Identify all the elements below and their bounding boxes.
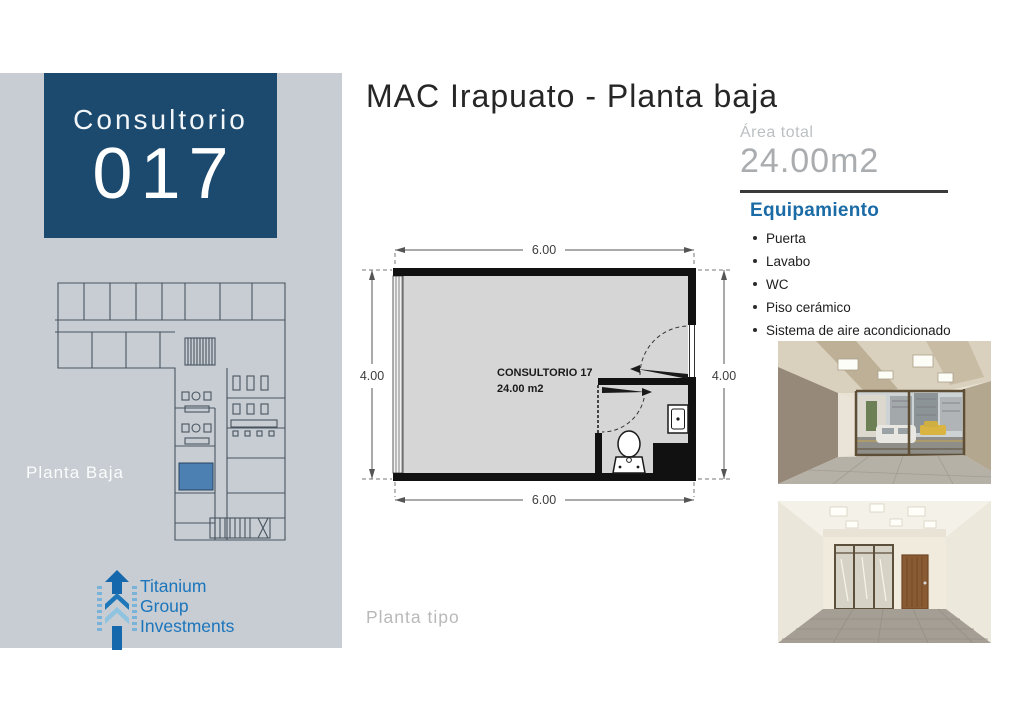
interior-render-empty-room: [778, 501, 991, 643]
total-area-block: Área total 24.00m2: [740, 124, 948, 193]
plan-dim-right: 4.00: [712, 369, 736, 383]
equipment-title: Equipamiento: [750, 200, 1020, 222]
titanium-logo-icon: [97, 570, 137, 650]
equipment-item: Lavabo: [750, 254, 1020, 269]
equipment-section: Equipamiento Puerta Lavabo WC Piso cerám…: [750, 200, 1020, 346]
plan-dim-top: 6.00: [532, 243, 556, 257]
interior-render-street-view: [778, 341, 991, 484]
plan-room-name: CONSULTORIO 17: [497, 367, 593, 379]
key-plan-drawing: [55, 278, 313, 550]
unit-number: 017: [84, 138, 236, 210]
logo-line-1: Titanium: [140, 576, 234, 596]
unit-floor-plan: CONSULTORIO 17 24.00 m2: [358, 236, 748, 521]
sidebar: Consultorio 017: [0, 73, 342, 648]
key-plan-highlighted-room: [179, 463, 213, 490]
page-title: MAC Irapuato - Planta baja: [366, 78, 778, 115]
equipment-list: Puerta Lavabo WC Piso cerámico Sistema d…: [750, 231, 1020, 338]
plan-dim-bottom: 6.00: [532, 493, 556, 507]
equipment-item: Sistema de aire acondicionado: [750, 323, 1020, 338]
plan-room-area: 24.00 m2: [497, 383, 543, 395]
floor-label: Planta Baja: [26, 463, 124, 483]
unit-badge: Consultorio 017: [44, 73, 277, 238]
plan-dim-left: 4.00: [360, 369, 384, 383]
unit-label: Consultorio: [73, 104, 248, 136]
logo-line-3: Investments: [140, 616, 234, 636]
company-logo: Titanium Group Investments: [97, 570, 234, 650]
equipment-item: WC: [750, 277, 1020, 292]
plan-type-label: Planta tipo: [366, 607, 460, 628]
area-value: 24.00m2: [740, 142, 948, 181]
area-label: Área total: [740, 124, 948, 142]
equipment-item: Puerta: [750, 231, 1020, 246]
equipment-item: Piso cerámico: [750, 300, 1020, 315]
logo-line-2: Group: [140, 596, 234, 616]
page: Consultorio 017: [0, 0, 1024, 724]
company-logo-text: Titanium Group Investments: [140, 570, 234, 636]
